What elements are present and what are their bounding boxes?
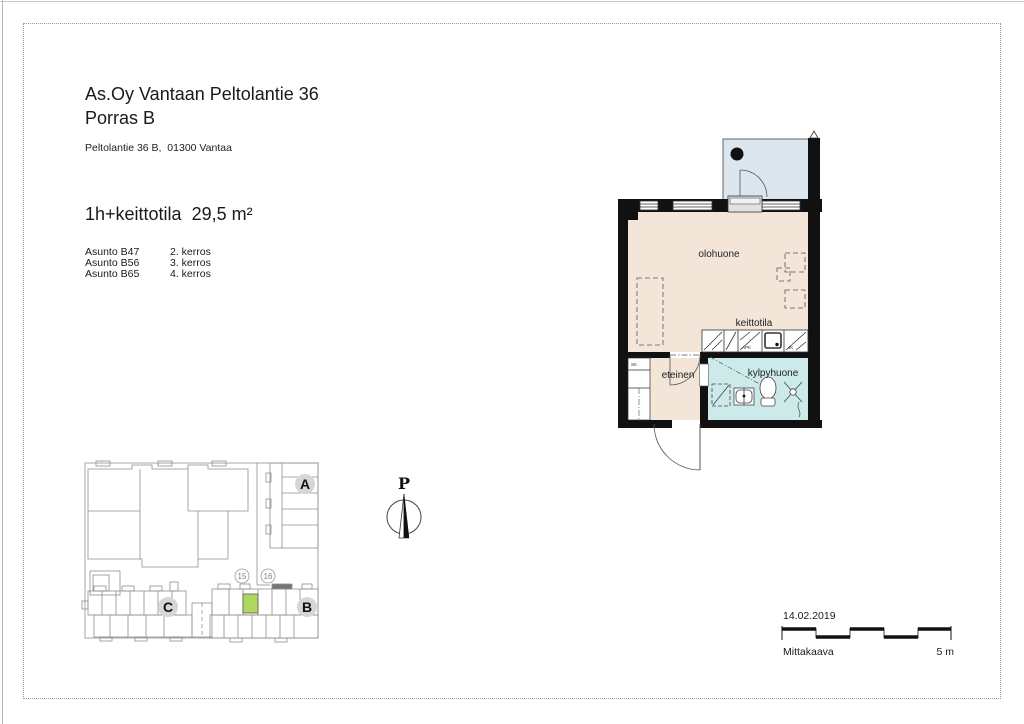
page-edge-left <box>2 0 3 724</box>
closet-label: SK <box>631 362 637 367</box>
dishwasher-label: APK <box>742 345 751 350</box>
svg-text:16: 16 <box>264 572 273 581</box>
hallway-label: eteinen <box>662 370 695 381</box>
svg-text:A: A <box>300 476 310 492</box>
scale-length: 5 m <box>928 646 954 658</box>
building-a-label: A <box>295 474 315 494</box>
apartment-list: Asunto B47 2. kerros Asunto B56 3. kerro… <box>85 247 211 280</box>
closet <box>628 358 650 420</box>
floor-plan: APK JK SK <box>616 130 826 480</box>
stair-15: 15 <box>235 569 249 583</box>
balcony <box>723 139 812 200</box>
fridge-label: JK <box>788 345 793 350</box>
bathroom-door <box>700 364 709 386</box>
highlighted-unit <box>243 594 258 613</box>
scale-caption: Mittakaava <box>783 646 834 658</box>
svg-text:B: B <box>302 599 312 615</box>
stair-16: 16 <box>261 569 275 583</box>
bathroom-label: kylpyhuone <box>748 368 799 379</box>
apartment-floor: 4. kerros <box>170 269 211 280</box>
kitchen-label: keittotila <box>736 318 773 329</box>
toilet-icon <box>760 377 776 406</box>
bathroom-sink-icon <box>734 388 754 405</box>
site-plan: 15 16 A C B <box>80 455 325 645</box>
building-b-label: B <box>297 597 317 617</box>
balcony-drain-icon <box>731 148 744 161</box>
date-label: 14.02.2019 <box>783 610 836 622</box>
document-title: As.Oy Vantaan Peltolantie 36 Porras B <box>85 82 319 130</box>
apartment-id: Asunto B65 <box>85 269 170 280</box>
living-room-label: olohuone <box>698 249 740 260</box>
site-building-nw <box>88 461 248 595</box>
address-line: Peltolantie 36 B, 01300 Vantaa <box>85 142 232 154</box>
section-marker-icon <box>810 131 818 138</box>
scale-bar <box>781 626 953 644</box>
svg-text:15: 15 <box>238 572 247 581</box>
site-connector <box>192 603 212 637</box>
page-edge-top <box>0 1 1024 2</box>
apartment-row: Asunto B65 4. kerros <box>85 269 211 280</box>
title-line-1: As.Oy Vantaan Peltolantie 36 <box>85 82 319 106</box>
title-line-2: Porras B <box>85 106 319 130</box>
north-label: P <box>398 474 410 493</box>
apartment-type: 1h+keittotila 29,5 m² <box>85 204 253 225</box>
svg-text:C: C <box>163 599 173 615</box>
north-arrow: P <box>378 472 430 544</box>
site-boundary <box>85 463 318 638</box>
building-c-label: C <box>158 597 178 617</box>
entry-door-arc <box>654 424 700 470</box>
